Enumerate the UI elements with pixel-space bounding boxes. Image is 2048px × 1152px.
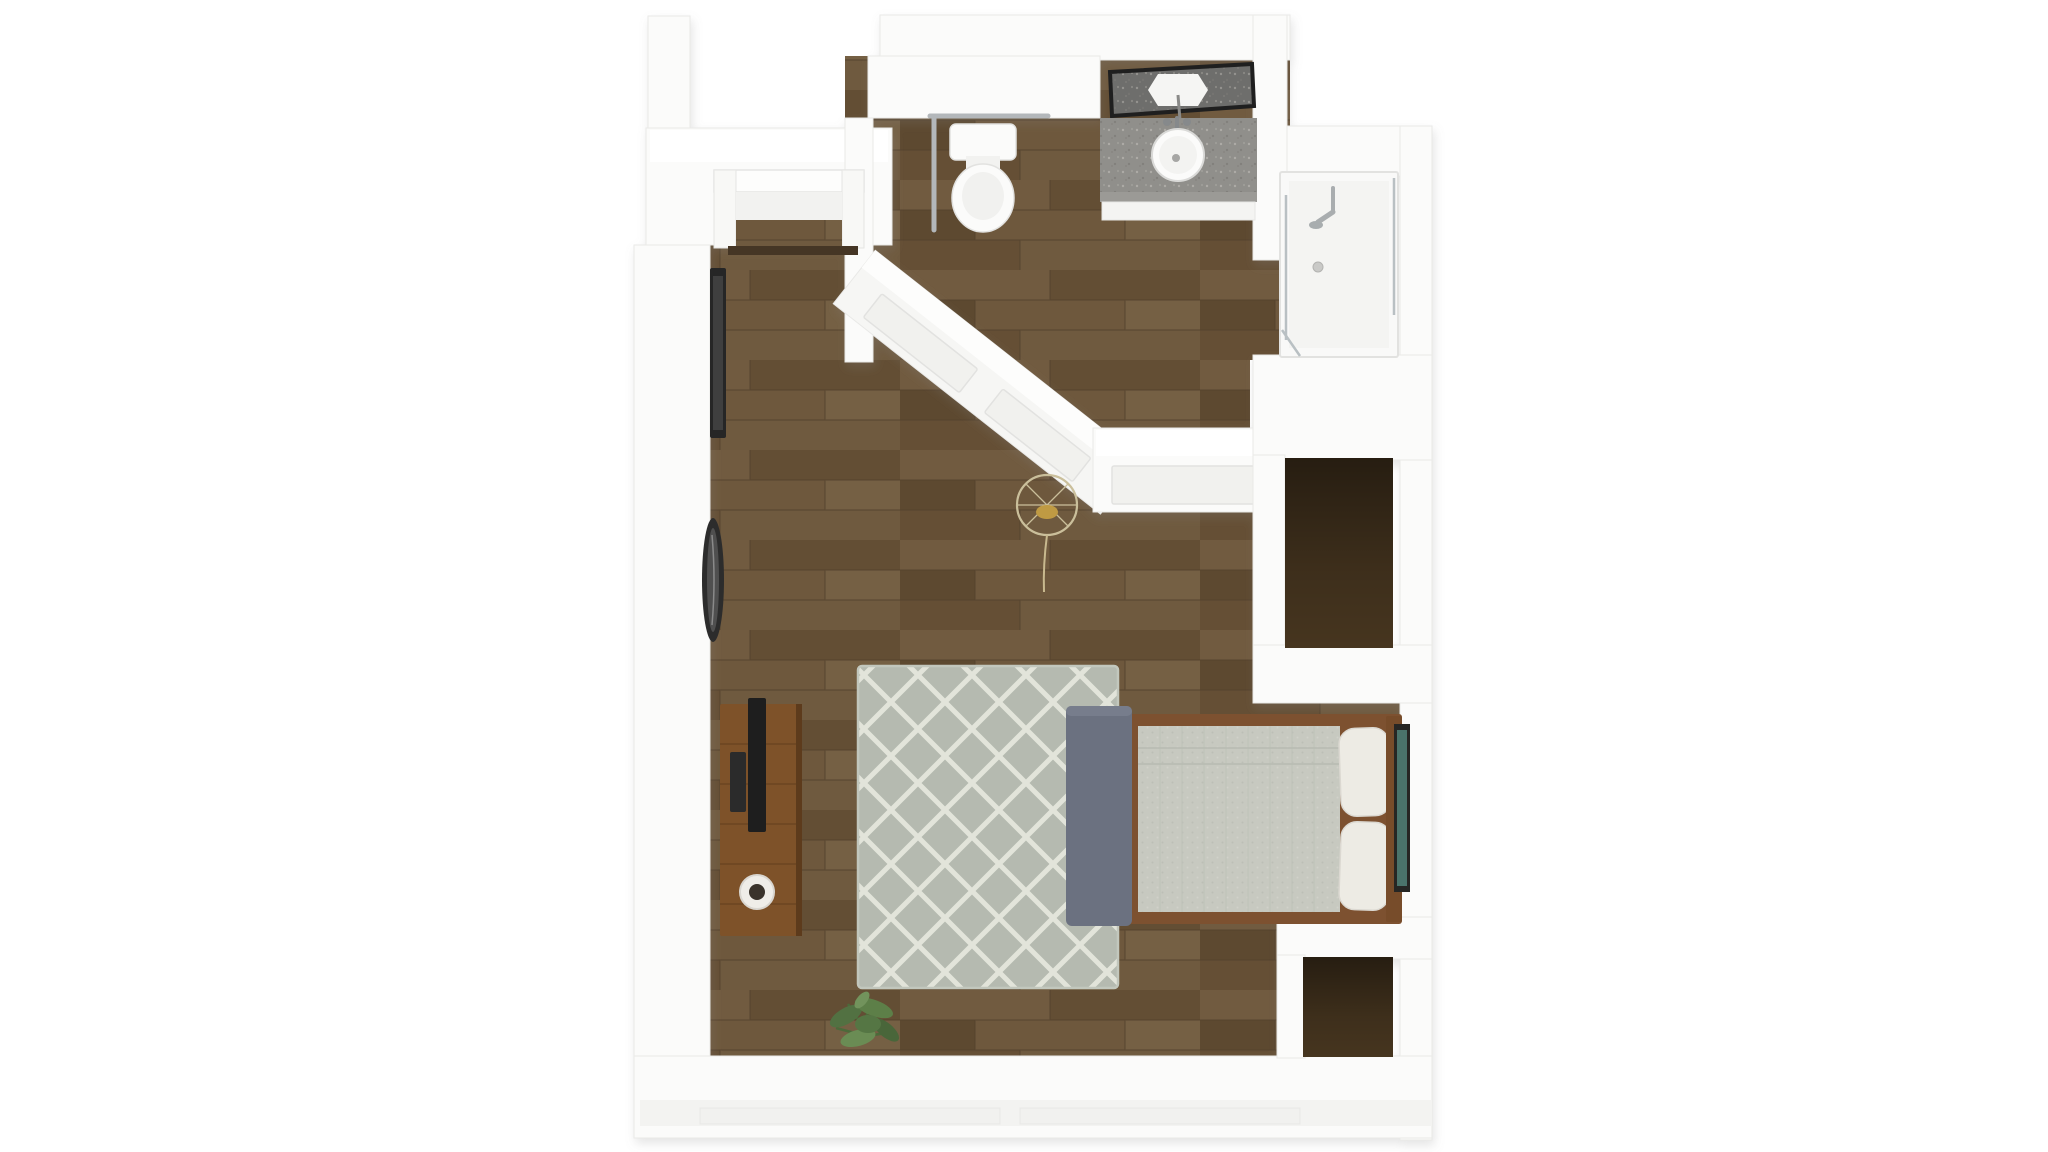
wall-closet-bottom	[1253, 645, 1432, 703]
toilet	[950, 124, 1016, 232]
upper-closet	[1285, 458, 1393, 648]
toilet-tank	[950, 124, 1016, 160]
faucet-handle	[1163, 118, 1171, 126]
bench-highlight	[1066, 706, 1132, 716]
sink-drain	[1172, 154, 1180, 162]
mirror-faucet-reflection	[1178, 95, 1180, 120]
wall-bathroom-top	[880, 15, 1290, 60]
window-sill	[1020, 1108, 1300, 1124]
wall-right-outer	[1400, 126, 1432, 1140]
pillow	[1338, 821, 1391, 911]
foot-bench	[1066, 706, 1132, 926]
door-recess	[736, 192, 842, 220]
lower-closet-shadow	[1303, 957, 1393, 1057]
entry-door	[714, 170, 864, 255]
picture-frame-inner	[713, 276, 723, 430]
faucet-handle	[1183, 118, 1191, 126]
tv	[748, 698, 766, 832]
oval-wall-mirror	[702, 518, 724, 642]
shower-pan-inner	[1289, 181, 1389, 348]
bench-cushion	[1066, 706, 1132, 926]
bedding-weave	[1138, 726, 1340, 912]
art-canvas	[1397, 730, 1407, 886]
door-jamb-left	[714, 170, 736, 248]
tv-mount	[730, 752, 746, 812]
wall-toilet-back	[868, 56, 1100, 118]
vanity	[1100, 64, 1257, 220]
bed	[1128, 714, 1402, 924]
console-edge	[796, 704, 802, 936]
floor-plan-render	[0, 0, 2048, 1152]
wall-under-shower	[1253, 355, 1432, 460]
mug-contents	[749, 884, 765, 900]
wall-art	[1394, 724, 1410, 892]
pendant-bulb	[1036, 505, 1058, 519]
pillow	[1338, 727, 1391, 817]
door-threshold	[728, 246, 858, 255]
door-jamb-right	[842, 170, 864, 248]
wall-left-outer	[634, 245, 710, 1060]
shower-head	[1309, 221, 1323, 229]
wall-closet-left	[1253, 455, 1285, 650]
wall-mid-panel	[1112, 466, 1264, 504]
lower-closet	[1303, 957, 1393, 1057]
upper-closet-shadow	[1285, 458, 1393, 648]
window-sill	[700, 1108, 1000, 1124]
media-console	[720, 698, 802, 936]
walk-in-shower	[1280, 172, 1398, 357]
picture-frame	[710, 268, 726, 438]
door-opening-floor	[736, 220, 842, 248]
shower-drain	[1313, 262, 1323, 272]
vanity-cabinet	[1102, 202, 1255, 220]
counter-edge	[1100, 192, 1257, 202]
plant-leaf	[855, 1015, 881, 1033]
toilet-seat	[962, 172, 1004, 220]
wall-closet2-left	[1277, 955, 1305, 1058]
